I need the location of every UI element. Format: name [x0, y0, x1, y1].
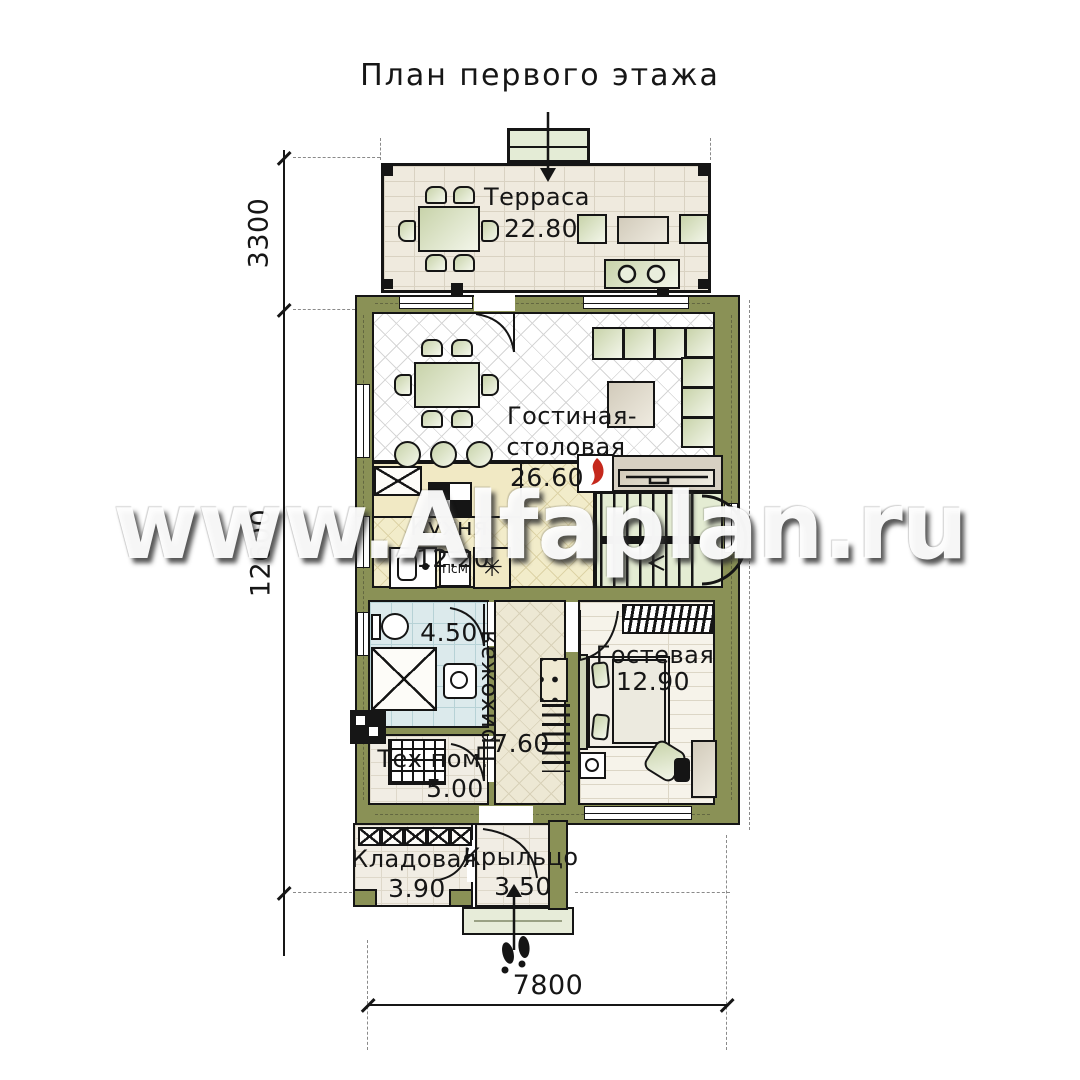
sofa-cushion [623, 327, 655, 360]
extension-line [710, 138, 711, 160]
storage-label: Кладовая [351, 845, 477, 873]
sofa-cushion [681, 357, 715, 388]
window [356, 384, 370, 458]
shower-tray [371, 647, 437, 711]
bathroom-sink [443, 663, 477, 699]
chair [481, 220, 499, 242]
toilet-tank [371, 614, 381, 640]
porch-label: Крыльцо [463, 843, 578, 871]
terrace-area: 22.80 [504, 214, 578, 243]
dim-house-width: 7800 [513, 970, 584, 1001]
storage-corner-block [449, 889, 473, 907]
sofa-cushion [592, 327, 624, 360]
chair [421, 339, 443, 357]
step-line [510, 146, 587, 148]
living-label-1: Гостиная- [507, 402, 637, 430]
terrace-dining-table [418, 206, 480, 252]
window [584, 806, 692, 820]
watermark: www.Alfaplan.ru [0, 472, 1080, 580]
toilet-bowl [381, 613, 409, 640]
bar-stool [466, 441, 493, 468]
extension-line [367, 940, 368, 1050]
hallway-floor [494, 600, 566, 805]
terrace-post [383, 279, 393, 289]
terrace-label: Терраса [484, 183, 590, 211]
storage-corner-block [353, 889, 377, 907]
chair [398, 220, 416, 242]
pillow [591, 713, 611, 741]
chair [394, 374, 412, 396]
terrace-post [698, 279, 708, 289]
window [357, 612, 369, 656]
chair [425, 186, 447, 204]
floor-plan-canvas: План первого этажа [0, 0, 1080, 1080]
sofa-cushion [654, 327, 686, 360]
chair [425, 254, 447, 272]
sofa-cushion [681, 387, 715, 418]
terrace-door-opening [474, 295, 515, 311]
hallway-area: 7.60 [492, 729, 550, 758]
porch-area: 3.50 [494, 872, 552, 901]
extension-line [293, 892, 352, 893]
extension-line [575, 892, 730, 893]
storage-shelf [358, 827, 381, 846]
hall-cabinet [540, 658, 568, 702]
storage-shelf [404, 827, 427, 846]
tech-label: Тех пом. [377, 745, 488, 773]
terrace-entry-steps [507, 128, 590, 163]
terrace-armchair [679, 214, 709, 244]
chair [481, 374, 499, 396]
bedside-table [579, 752, 606, 779]
guest-area: 12.90 [616, 667, 690, 696]
terrace-armchair [577, 214, 607, 244]
step-line [474, 920, 562, 922]
living-label-2: столовая [506, 433, 625, 461]
bed-headboard [578, 654, 588, 750]
dim-terrace-depth: 3300 [244, 198, 275, 269]
storage-area: 3.90 [388, 874, 446, 903]
sofa-corner [685, 327, 715, 358]
chair [451, 410, 473, 428]
wall-pipes-unit [350, 710, 386, 744]
tech-area: 5.00 [426, 774, 484, 803]
sink-basin [450, 671, 468, 689]
table-circle [585, 758, 599, 772]
sofa-cushion [681, 417, 715, 448]
extension-line [380, 138, 381, 160]
bathroom-area: 4.50 [420, 618, 478, 647]
storage-shelf [381, 827, 404, 846]
guest-wardrobe [622, 604, 714, 634]
pipe-port [369, 727, 378, 736]
extension-line [293, 309, 355, 310]
desk-chair [674, 758, 690, 782]
chair [421, 410, 443, 428]
terrace-post [698, 166, 708, 176]
bar-stool [394, 441, 421, 468]
desk [691, 740, 717, 798]
guest-door-opening [566, 602, 578, 652]
window [583, 296, 689, 309]
porch-step [462, 907, 574, 935]
chair [451, 339, 473, 357]
window [399, 296, 473, 309]
page-title: План первого этажа [0, 58, 1080, 93]
bar-stool [430, 441, 457, 468]
terrace-post [383, 166, 393, 176]
footprints-icon [500, 935, 531, 973]
terrace-bench [604, 259, 680, 289]
living-dining-table [414, 362, 480, 408]
pipe-port [356, 716, 365, 725]
chair [453, 254, 475, 272]
chair [453, 186, 475, 204]
terrace-coffee-table [617, 216, 669, 244]
storage-shelf [427, 827, 450, 846]
dimension-line-bottom [368, 1004, 727, 1006]
extension-line [726, 835, 727, 1050]
extension-line [293, 157, 380, 158]
porch-door-opening [479, 806, 533, 823]
guest-label: Гостевая [596, 641, 715, 669]
terrace-post [451, 283, 463, 295]
